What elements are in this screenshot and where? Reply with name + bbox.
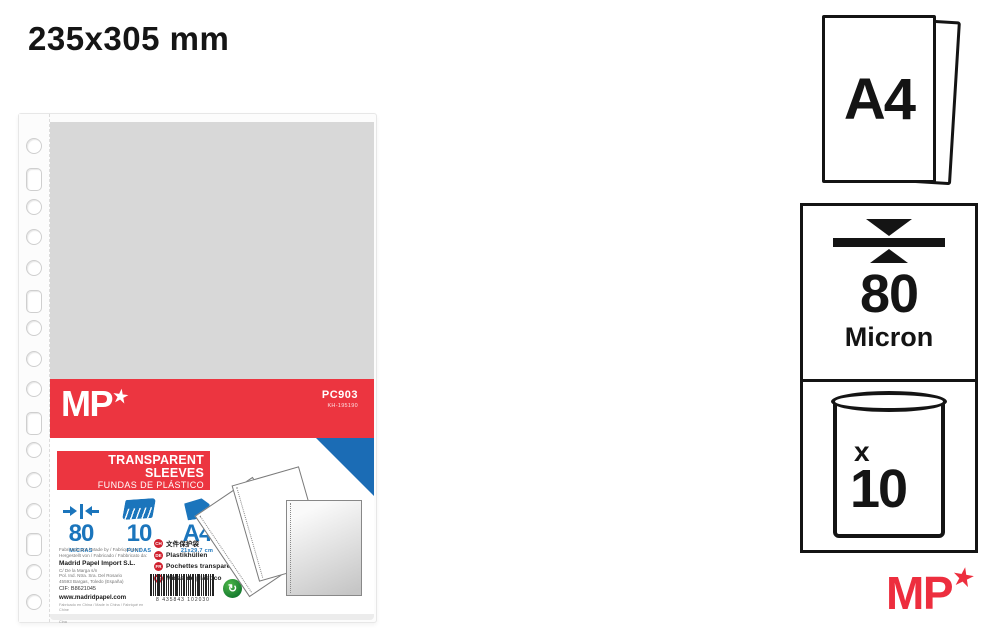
manufacturer-footnote: Fabricado en China / Made in China / Fab…	[59, 603, 151, 613]
sleeve-outline-icon: x 10	[833, 398, 945, 538]
mp-logo: MP★	[886, 566, 974, 616]
made-by-line: Fabricado por / Made by / Fabriqué par /	[59, 547, 151, 553]
punched-hole	[26, 412, 42, 435]
thickness-gauge-icon	[803, 206, 975, 263]
manufacturer-address: 45593 Bargas, Toledo (España)	[59, 579, 151, 585]
punched-hole	[26, 533, 42, 556]
made-by-line: Hergestellt von / Fabricado / Fabbricato…	[59, 553, 151, 559]
thickness-unit: Micron	[803, 324, 975, 351]
punched-hole	[26, 594, 42, 610]
product-title-box: TRANSPARENT SLEEVES FUNDAS DE PLÁSTICO B…	[57, 451, 210, 490]
punched-hole	[26, 168, 42, 191]
a4-page-front: A4	[822, 15, 936, 183]
product-title-en: TRANSPARENT SLEEVES	[57, 454, 204, 480]
sheet-stack-icon	[122, 498, 156, 520]
language-badge: DE	[154, 551, 163, 560]
mp-band-logo: MP★	[61, 386, 128, 422]
manufacturer-website: www.madridpapel.com	[59, 594, 151, 601]
star-icon: ★	[112, 387, 129, 406]
page-title: 235x305 mm	[28, 20, 229, 58]
thickness-panel: 80 Micron	[800, 203, 978, 382]
star-icon: ★	[951, 564, 975, 590]
sleeve-illustration	[216, 464, 374, 614]
punched-hole	[26, 503, 42, 519]
insert-sheet	[50, 122, 374, 379]
punched-hole	[26, 564, 42, 580]
punched-hole	[26, 381, 42, 397]
barcode-digits: 8 435843 102030	[150, 597, 216, 603]
mp-logo-text: MP	[886, 567, 952, 619]
language-label: 文件保护袋	[166, 538, 199, 548]
punched-hole	[26, 290, 42, 313]
hole-strip	[19, 114, 50, 622]
language-badge: FR	[154, 562, 163, 571]
product-title-es: FUNDAS DE PLÁSTICO	[57, 480, 204, 490]
barcode: 8 435843 102030	[150, 574, 216, 603]
product-sku-block: PC903 KH-195190	[322, 390, 358, 409]
thickness-arrows-icon	[63, 504, 99, 519]
punched-hole	[26, 442, 42, 458]
punched-hole	[26, 472, 42, 488]
product-sheet: 235x305 mm MP★ PC903 KH-195190 TRANSPARE…	[0, 0, 1000, 641]
product-sku: PC903	[322, 390, 358, 401]
a4-pages-icon: A4	[822, 15, 956, 187]
mp-band-logo-text: MP	[61, 383, 112, 424]
manufacturer-name: Madrid Papel Import S.L.	[59, 560, 151, 567]
brand-band: MP★ PC903 KH-195190	[50, 379, 374, 438]
punched-hole	[26, 260, 42, 276]
thickness-value: 80	[803, 267, 975, 321]
barcode-bars	[150, 574, 216, 596]
manufacturer-block: Fabricado por / Made by / Fabriqué par /…	[59, 547, 151, 625]
product-photo: MP★ PC903 KH-195190 TRANSPARENT SLEEVES …	[18, 113, 377, 623]
punched-hole	[26, 199, 42, 215]
quantity-panel: x 10	[800, 379, 978, 553]
punched-hole	[26, 138, 42, 154]
format-label: A4	[844, 66, 914, 133]
sleeve-front	[286, 500, 362, 596]
sleeve-bottom-edge	[50, 614, 374, 620]
product-sku-sub: KH-195190	[322, 403, 358, 409]
label-card: TRANSPARENT SLEEVES FUNDAS DE PLÁSTICO B…	[50, 438, 374, 614]
language-label: Plastikhüllen	[166, 552, 207, 559]
language-badge: CH	[154, 539, 163, 548]
punched-hole	[26, 229, 42, 245]
quantity-value: 10	[850, 458, 906, 520]
punched-hole	[26, 320, 42, 336]
manufacturer-cif: CIF: B8621045	[59, 586, 151, 592]
spec-value: 80	[58, 522, 104, 546]
spec-item-thickness: 80 MICRAS	[58, 495, 104, 554]
punched-hole	[26, 351, 42, 367]
sleeve-opening-icon	[831, 391, 947, 412]
